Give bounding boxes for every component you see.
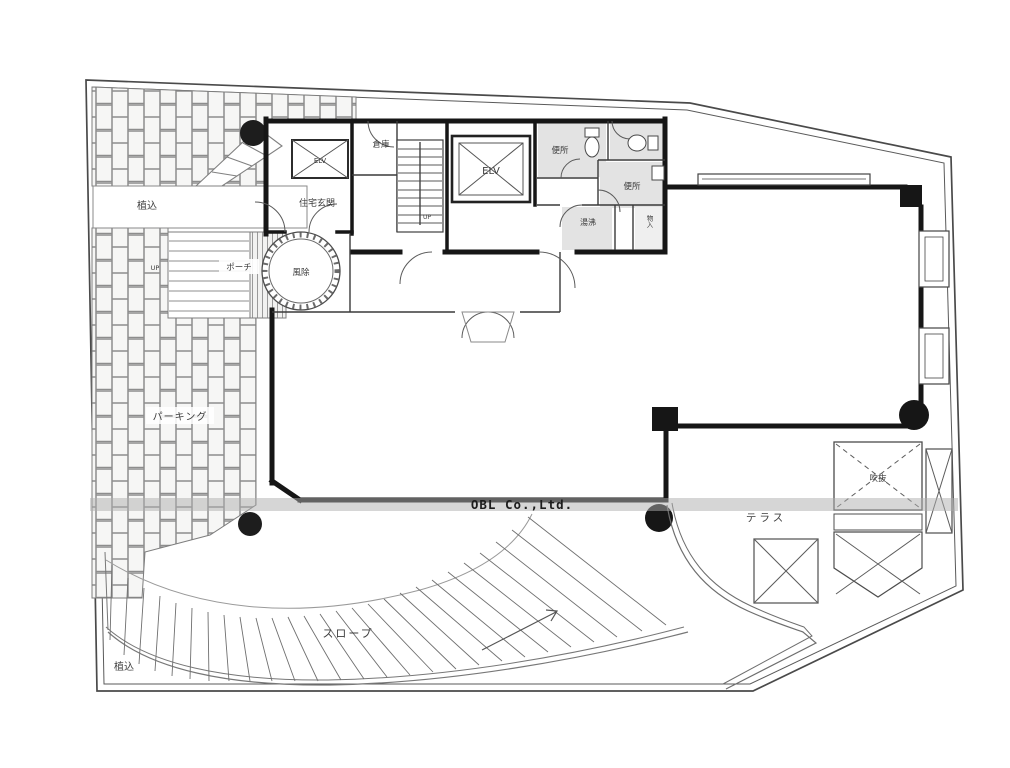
up-stairs-label: UP bbox=[423, 214, 431, 221]
interior-staircase: UP bbox=[397, 140, 443, 232]
void-label: 吹抜 bbox=[869, 473, 887, 484]
terrace-label: テラス bbox=[746, 512, 786, 524]
planting-area-top: 植込 bbox=[93, 186, 307, 228]
toilet-upper-label: 便所 bbox=[551, 145, 569, 156]
corner-column-ne bbox=[900, 185, 922, 207]
windbreak-label: 風除 bbox=[292, 267, 310, 278]
hot-water-label: 湯沸 bbox=[580, 217, 596, 227]
watermark: OBL Co.,Ltd. bbox=[90, 497, 958, 512]
floor-plan-page: 植込 パーキング UP スロープ 植込 bbox=[0, 0, 1010, 768]
planting-top-label: 植込 bbox=[137, 199, 157, 212]
porch-label: ポーチ bbox=[226, 263, 252, 273]
residence-entrance-label: 住宅玄関 bbox=[299, 197, 335, 209]
windbreak-vestibule: 風除 bbox=[262, 232, 340, 310]
corner-column-terrace bbox=[652, 407, 678, 431]
round-column-se bbox=[899, 400, 929, 430]
closet-label: 物入 bbox=[645, 214, 653, 229]
slope-label: スロープ bbox=[322, 627, 373, 640]
watermark-text: OBL Co.,Ltd. bbox=[471, 497, 573, 512]
up-outdoor-label: UP bbox=[151, 264, 160, 272]
elevator-main-label: ELV bbox=[482, 166, 500, 177]
elevator-small: ELV bbox=[292, 140, 348, 178]
elevator-small-label: ELV bbox=[314, 157, 327, 165]
toilet-lower-label: 便所 bbox=[623, 181, 641, 192]
parking-label: パーキング bbox=[153, 410, 208, 423]
storage-label: 倉庫 bbox=[372, 139, 390, 150]
tree-circle-bottom bbox=[238, 512, 262, 536]
parking-area: パーキング bbox=[146, 407, 214, 424]
floor-plan-drawing: 植込 パーキング UP スロープ 植込 bbox=[0, 0, 1010, 768]
tree-circle-top bbox=[240, 120, 266, 146]
elevator-main: ELV bbox=[452, 136, 530, 202]
planting-bottom-label: 植込 bbox=[114, 660, 134, 673]
